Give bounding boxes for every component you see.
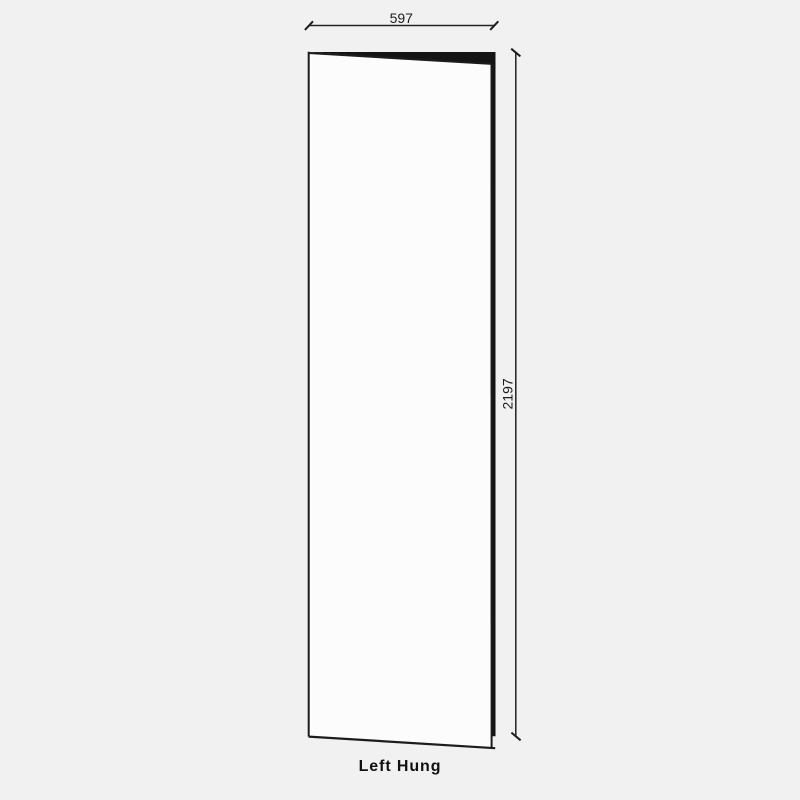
svg-text:Left Hung: Left Hung xyxy=(359,758,442,775)
svg-text:597: 597 xyxy=(390,10,414,26)
svg-text:2197: 2197 xyxy=(499,378,515,409)
